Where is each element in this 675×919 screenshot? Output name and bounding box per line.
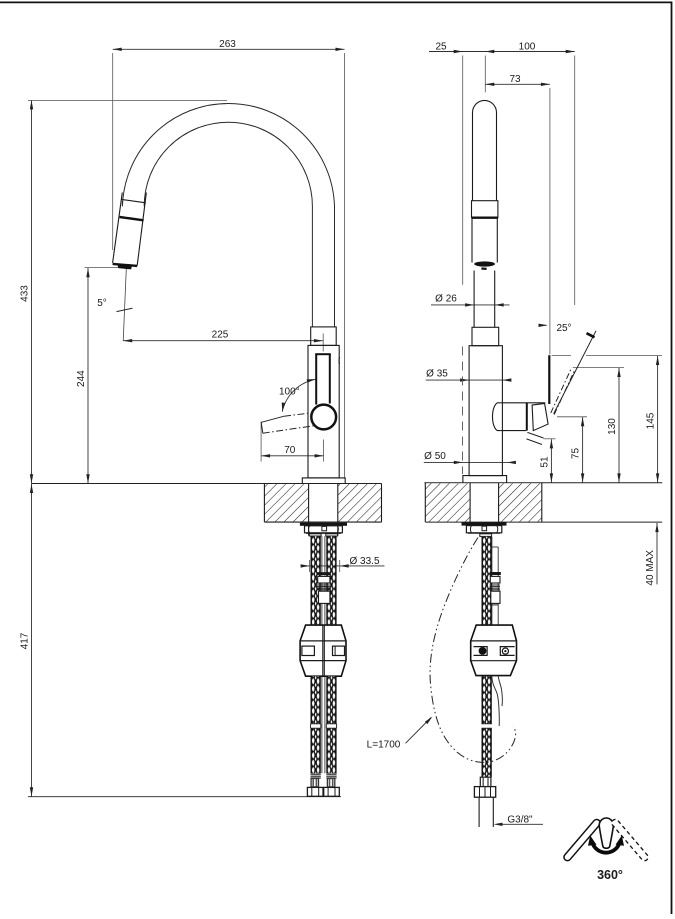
svg-text:244: 244	[76, 370, 87, 387]
svg-text:360°: 360°	[597, 868, 623, 882]
svg-text:Ø 33.5: Ø 33.5	[349, 556, 379, 567]
svg-text:73: 73	[509, 74, 521, 85]
svg-text:Ø 35: Ø 35	[426, 369, 448, 380]
svg-text:Ø 50: Ø 50	[424, 451, 446, 462]
svg-text:145: 145	[646, 412, 657, 429]
svg-text:70: 70	[284, 445, 296, 456]
svg-text:263: 263	[219, 39, 236, 50]
svg-text:225: 225	[212, 329, 229, 340]
svg-text:433: 433	[20, 285, 31, 302]
svg-text:51: 51	[540, 456, 551, 468]
svg-text:G3/8": G3/8"	[507, 814, 533, 825]
svg-text:25: 25	[435, 41, 447, 52]
svg-text:100: 100	[519, 41, 536, 52]
svg-text:75: 75	[571, 448, 582, 460]
svg-text:25°: 25°	[556, 323, 571, 334]
svg-text:130: 130	[607, 418, 618, 435]
svg-text:L=1700: L=1700	[367, 740, 401, 751]
svg-text:417: 417	[20, 632, 31, 649]
svg-text:5°: 5°	[97, 298, 107, 309]
svg-text:40 MAX: 40 MAX	[645, 550, 656, 586]
svg-text:Ø 26: Ø 26	[435, 294, 457, 305]
